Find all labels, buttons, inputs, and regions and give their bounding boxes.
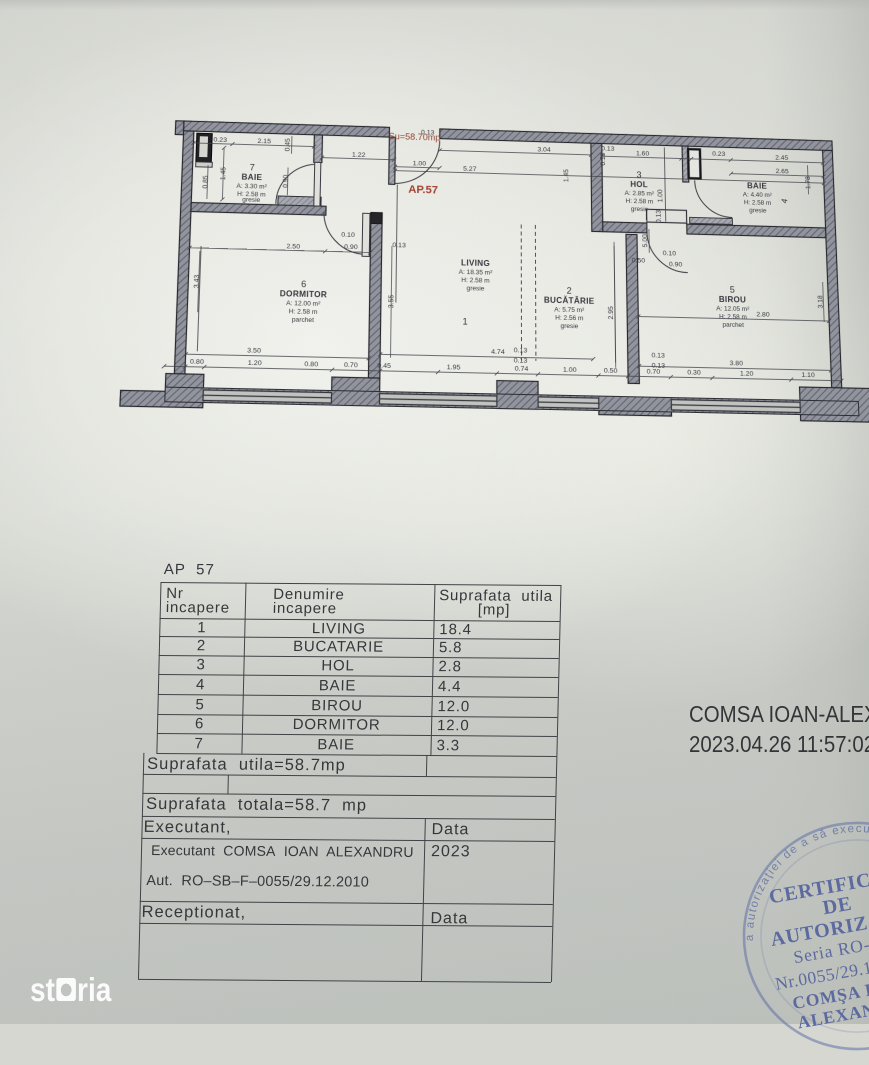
svg-text:A: 3.30 m²: A: 3.30 m²: [236, 183, 266, 191]
svg-text:A: 4.40 m²: A: 4.40 m²: [743, 191, 772, 199]
svg-text:H: 2.58 m: H: 2.58 m: [289, 308, 318, 316]
svg-text:3: 3: [636, 170, 641, 180]
svg-text:0.30: 0.30: [687, 369, 701, 376]
svg-text:0.13: 0.13: [656, 210, 663, 223]
svg-text:0.50: 0.50: [632, 257, 646, 264]
svg-text:3.55: 3.55: [388, 294, 395, 308]
svg-text:gresie: gresie: [749, 207, 767, 214]
svg-text:5.27: 5.27: [463, 166, 477, 173]
svg-text:1.45: 1.45: [220, 167, 228, 181]
svg-text:1.00: 1.00: [657, 189, 664, 202]
svg-text:0.74: 0.74: [515, 366, 529, 373]
svg-text:1.22: 1.22: [352, 152, 366, 159]
svg-text:1.78: 1.78: [805, 176, 812, 189]
svg-text:BAIE: BAIE: [241, 173, 262, 183]
svg-text:gresie: gresie: [467, 285, 485, 293]
svg-text:gresie: gresie: [561, 323, 579, 331]
svg-text:2.50: 2.50: [286, 243, 300, 250]
svg-text:0.90: 0.90: [282, 174, 290, 188]
svg-text:0.90: 0.90: [344, 244, 358, 251]
svg-text:2.45: 2.45: [775, 155, 788, 162]
svg-text:1.00: 1.00: [563, 367, 577, 374]
svg-text:1.95: 1.95: [447, 364, 461, 371]
svg-text:5.00: 5.00: [642, 234, 649, 247]
svg-text:4: 4: [779, 197, 789, 204]
svg-text:A: 18.35 m²: A: 18.35 m²: [459, 269, 493, 277]
svg-text:2.65: 2.65: [776, 168, 789, 175]
svg-text:0.50: 0.50: [604, 367, 618, 374]
svg-text:0.13: 0.13: [600, 152, 607, 165]
svg-text:1.20: 1.20: [740, 370, 754, 377]
svg-text:0.90: 0.90: [669, 261, 683, 268]
svg-text:6: 6: [301, 279, 306, 289]
svg-text:BIROU: BIROU: [719, 295, 747, 305]
svg-text:0.13: 0.13: [651, 352, 665, 359]
svg-text:0.23: 0.23: [712, 151, 725, 158]
svg-text:LIVING: LIVING: [461, 258, 490, 268]
svg-text:3.18: 3.18: [817, 295, 824, 309]
svg-text:7: 7: [249, 162, 254, 172]
svg-text:3.43: 3.43: [193, 274, 201, 288]
svg-text:A: 12.00 m²: A: 12.00 m²: [286, 300, 320, 308]
svg-text:0.13: 0.13: [514, 357, 528, 364]
svg-text:H: 2.58 m: H: 2.58 m: [744, 199, 772, 207]
svg-text:0.23: 0.23: [213, 137, 227, 144]
svg-text:H: 2.58 m: H: 2.58 m: [626, 198, 654, 206]
svg-text:0.10: 0.10: [341, 232, 355, 239]
svg-text:H: 2.58 m: H: 2.58 m: [461, 277, 489, 285]
svg-text:HOL: HOL: [630, 180, 648, 189]
svg-text:3.80: 3.80: [730, 360, 744, 367]
svg-text:3.50: 3.50: [247, 347, 261, 355]
svg-text:5: 5: [730, 285, 735, 295]
svg-text:2.95: 2.95: [608, 306, 615, 320]
svg-text:0.13: 0.13: [601, 145, 614, 152]
svg-text:1: 1: [463, 316, 468, 326]
svg-text:1.60: 1.60: [636, 150, 649, 157]
svg-text:1.10: 1.10: [801, 372, 815, 379]
svg-text:0.45: 0.45: [284, 138, 291, 151]
svg-text:H: 2.56 m: H: 2.56 m: [555, 315, 583, 323]
svg-text:1.45: 1.45: [563, 169, 570, 182]
svg-text:0.85: 0.85: [202, 175, 210, 189]
svg-text:A: 12.05 m²: A: 12.05 m²: [716, 305, 749, 313]
svg-text:DORMITOR: DORMITOR: [280, 289, 328, 299]
svg-text:parchet: parchet: [292, 316, 315, 324]
svg-text:A: 2.85 m²: A: 2.85 m²: [625, 190, 654, 198]
svg-text:H: 2.58 m: H: 2.58 m: [719, 313, 747, 321]
svg-text:4.74: 4.74: [491, 349, 505, 356]
svg-text:3.04: 3.04: [537, 146, 550, 153]
svg-text:0.13: 0.13: [392, 242, 406, 249]
svg-text:2: 2: [567, 286, 572, 296]
svg-text:0.13: 0.13: [514, 347, 528, 354]
svg-text:0.70: 0.70: [344, 362, 358, 370]
svg-text:parchet: parchet: [722, 322, 744, 330]
svg-text:Su=58.70mp: Su=58.70mp: [389, 131, 441, 142]
svg-text:BUCĂTĂRIE: BUCĂTĂRIE: [544, 296, 595, 306]
svg-text:0.10: 0.10: [663, 250, 677, 257]
svg-text:0.80: 0.80: [304, 361, 318, 369]
svg-text:1.00: 1.00: [413, 160, 427, 167]
svg-text:2.15: 2.15: [257, 138, 271, 145]
svg-text:gresie: gresie: [631, 206, 649, 213]
svg-text:CERTIFICAT: CERTIFICAT: [767, 864, 869, 908]
svg-text:gresie: gresie: [242, 196, 261, 203]
svg-text:0.13: 0.13: [652, 362, 666, 369]
svg-text:0.80: 0.80: [190, 358, 204, 366]
svg-text:1.20: 1.20: [248, 360, 262, 368]
svg-text:2.80: 2.80: [756, 311, 770, 318]
svg-text:0.45: 0.45: [377, 363, 391, 371]
svg-text:AP.57: AP.57: [408, 184, 438, 197]
svg-text:BAIE: BAIE: [747, 181, 768, 190]
svg-text:A: 5.75 m²: A: 5.75 m²: [554, 306, 584, 314]
